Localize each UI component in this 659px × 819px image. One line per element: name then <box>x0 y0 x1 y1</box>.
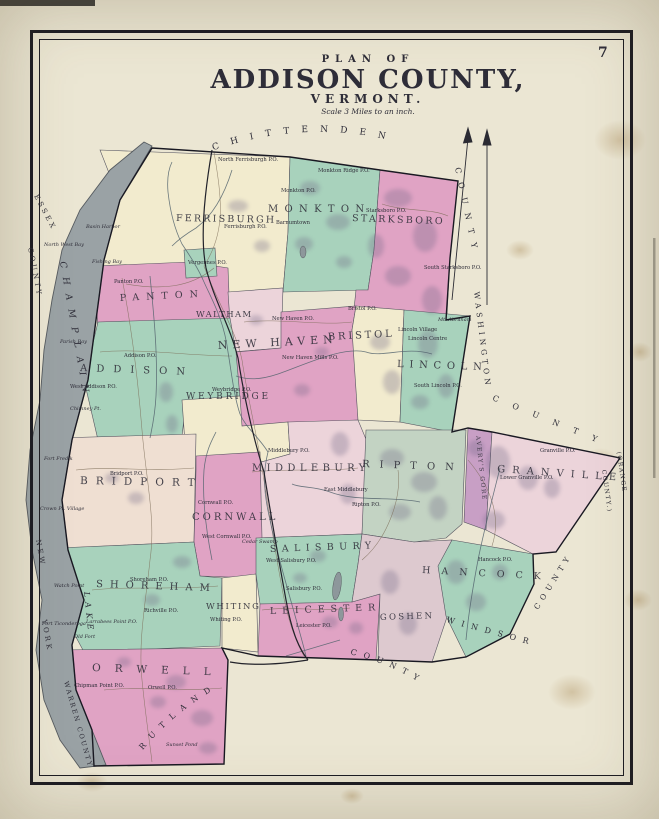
label-south-starksboro-po: South Starksboro P.O. <box>424 265 482 271</box>
label-waltham: WALTHAM <box>196 310 252 320</box>
label-leicester-po: Leicester P.O. <box>296 623 332 629</box>
label-new-haven-mills-po: New Haven Mills P.O. <box>282 355 339 361</box>
label-cornwall: CORNWALL <box>192 512 278 523</box>
town-whiting <box>222 574 258 652</box>
label-crown-point-village: Crown Pt. Village <box>40 506 84 512</box>
label-addison-po: Addison P.O. <box>123 353 157 359</box>
label-fishing-bay: Fishing Bay <box>91 259 122 265</box>
label-fort-ticonderoga: Fort Ticonderoga <box>41 621 86 627</box>
label-east-middlebury: East Middlebury <box>324 487 368 493</box>
label-west-addison-po: West Addison P.O. <box>70 384 117 390</box>
label-orwell-po: Orwell P.O. <box>148 685 177 691</box>
label-barnumtown: Barnumtown <box>276 220 311 226</box>
label-ripton-po: Ripton P.O. <box>352 502 381 508</box>
label-larrabees-point: Larrabees Point P.O. <box>85 619 138 625</box>
label-fort-frederick: Fort Fred'k <box>43 456 73 462</box>
label-weybridge: WEYBRIDGE <box>186 392 271 402</box>
title-sub: VERMONT. <box>310 92 426 106</box>
label-ferrisburgh-po: Ferrisburgh P.O. <box>224 224 267 230</box>
label-mt-abraham: Mt. Abraham <box>437 317 472 323</box>
label-north-ferrisburgh-po: North Ferrisburgh P.O. <box>218 157 278 163</box>
title-scale: Scale 3 Miles to an inch. <box>321 107 415 116</box>
label-bridport-po: Bridport P.O. <box>110 471 144 477</box>
label-old-fort: Old Fort <box>74 634 96 640</box>
label-panton-po: Panton P.O. <box>114 279 144 285</box>
label-basin-harbor: Basin Harbor <box>85 224 121 230</box>
map-canvas: PLAN OF ADDISON COUNTY, VERMONT. Scale 3… <box>0 0 659 819</box>
label-vergennes-po: Vergennes P.O. <box>187 260 227 266</box>
label-whiting: WHITING <box>206 602 261 612</box>
label-cornwall-po: Cornwall P.O. <box>198 500 233 506</box>
label-hancock-po: Hancock P.O. <box>478 557 513 563</box>
label-richville-po: Richville P.O. <box>144 608 178 614</box>
label-whiting-po: Whiting P.O. <box>210 617 242 623</box>
label-salisbury-po: Salisbury P.O. <box>286 586 322 592</box>
label-monkton-ridge-po: Monkton Ridge P.O. <box>318 168 370 174</box>
town-bridport <box>50 434 196 548</box>
label-granville-po: Granville P.O. <box>540 448 576 454</box>
page-number: 7 <box>598 45 608 61</box>
label-chimney-point: Chimney Pt. <box>70 406 101 412</box>
label-middlebury-po: Middlebury P.O. <box>268 448 310 454</box>
label-parish-bay: Parish Bay <box>59 339 87 345</box>
label-goshen: GOSHEN <box>380 611 435 623</box>
label-bristol-po: Bristol P.O. <box>348 306 377 312</box>
label-west-cornwall-po: West Cornwall P.O. <box>202 534 252 540</box>
label-lincoln-centre: Lincoln Centre <box>408 336 447 342</box>
label-south-lincoln-po: South Lincoln P.O. <box>414 383 462 389</box>
label-middlebury: MIDDLEBURY <box>252 463 370 474</box>
label-west-salisbury-po: West Salisbury P.O. <box>266 558 317 564</box>
label-chipman-point-po: Chipman Point P.O. <box>74 683 124 689</box>
label-watch-point: Watch Point <box>54 583 85 589</box>
atlas-page: PLAN OF ADDISON COUNTY, VERMONT. Scale 3… <box>0 0 659 819</box>
label-shoreham-po: Shoreham P.O. <box>130 577 169 583</box>
title-kicker: PLAN OF <box>322 54 415 65</box>
page-title: ADDISON COUNTY, <box>209 65 525 95</box>
scan-edge-top <box>0 0 95 6</box>
label-starksboro-po: Starksboro P.O. <box>366 208 407 214</box>
label-lincoln-village: Lincoln Village <box>398 327 437 333</box>
label-bridport: BRIDPORT <box>80 475 203 489</box>
label-new-haven-po: New Haven P.O. <box>272 316 314 322</box>
label-northwest-bay: North West Bay <box>43 242 84 248</box>
label-sunset-pond: Sunset Pond <box>166 742 198 748</box>
scan-edge-right <box>653 238 656 478</box>
label-lower-granville-po: Lower Granville P.O. <box>500 475 554 481</box>
label-weybridge-po: Weybridge P.O. <box>212 387 252 393</box>
label-monkton-po: Monkton P.O. <box>281 188 316 194</box>
